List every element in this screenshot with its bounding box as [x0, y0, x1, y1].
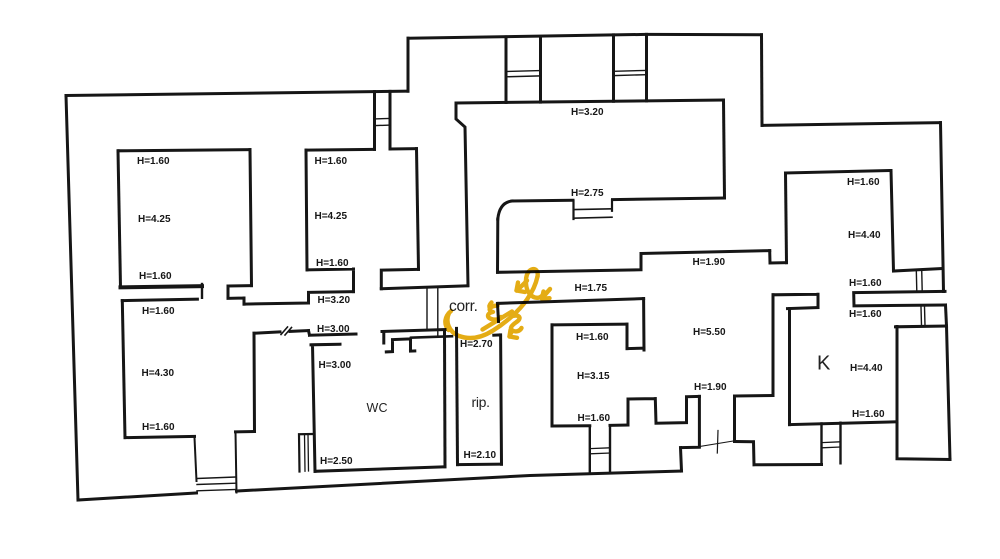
svg-text:H=1.75: H=1.75	[575, 283, 608, 294]
svg-text:H=1.60: H=1.60	[578, 413, 611, 424]
svg-text:H=5.50: H=5.50	[693, 327, 726, 338]
svg-text:H=1.60: H=1.60	[849, 278, 882, 289]
svg-text:H=1.60: H=1.60	[847, 177, 880, 188]
svg-text:WC: WC	[367, 401, 388, 415]
svg-text:H=1.60: H=1.60	[139, 271, 172, 282]
svg-text:H=1.60: H=1.60	[849, 309, 882, 320]
svg-text:H=3.20: H=3.20	[571, 107, 604, 118]
svg-text:H=4.25: H=4.25	[315, 211, 348, 222]
svg-text:K: K	[817, 353, 831, 375]
svg-text:H=4.40: H=4.40	[850, 363, 883, 374]
svg-text:H=2.10: H=2.10	[464, 450, 497, 461]
svg-text:H=1.60: H=1.60	[576, 332, 609, 343]
svg-text:H=1.60: H=1.60	[315, 156, 348, 167]
svg-text:H=4.25: H=4.25	[138, 214, 171, 225]
svg-text:H=4.40: H=4.40	[848, 230, 881, 241]
svg-text:H=3.00: H=3.00	[319, 360, 352, 371]
svg-text:H=4.30: H=4.30	[142, 368, 175, 379]
svg-text:H=3.20: H=3.20	[318, 295, 351, 306]
svg-text:H=3.00: H=3.00	[317, 324, 350, 335]
svg-text:H=1.60: H=1.60	[142, 422, 175, 433]
svg-text:H=1.60: H=1.60	[852, 409, 885, 420]
svg-text:H=1.90: H=1.90	[694, 382, 727, 393]
svg-text:H=1.60: H=1.60	[142, 306, 175, 317]
svg-text:H=2.70: H=2.70	[460, 339, 493, 350]
svg-text:rip.: rip.	[472, 394, 490, 410]
svg-text:H=1.90: H=1.90	[693, 257, 726, 268]
svg-text:corr.: corr.	[449, 298, 478, 315]
svg-text:H=2.75: H=2.75	[571, 188, 604, 199]
svg-text:H=1.60: H=1.60	[137, 156, 170, 167]
svg-text:H=3.15: H=3.15	[577, 371, 610, 382]
svg-text:H=1.60: H=1.60	[316, 258, 349, 269]
svg-text:H=2.50: H=2.50	[320, 456, 353, 467]
